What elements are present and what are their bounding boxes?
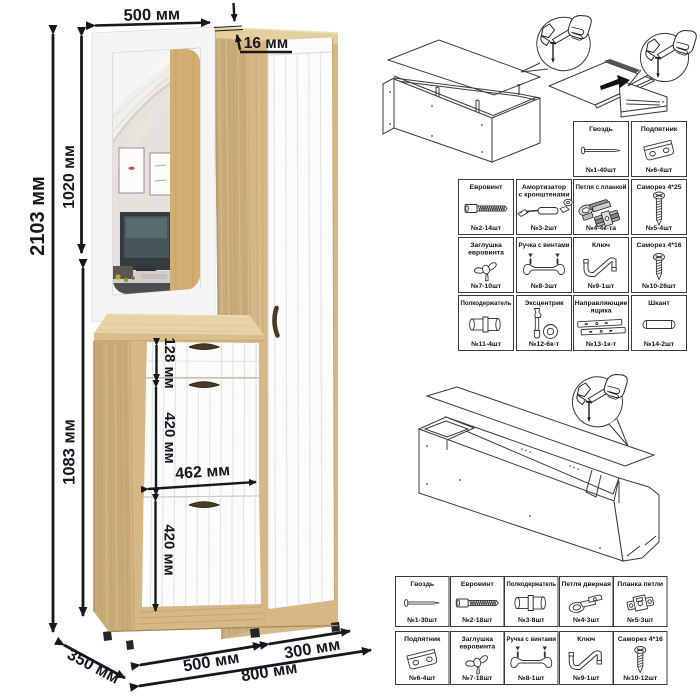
svg-text:Ключ: Ключ (577, 636, 595, 643)
svg-text:№14-2шт: №14-2шт (644, 341, 675, 348)
svg-text:евровинта: евровинта (468, 250, 504, 257)
svg-text:№2-18шт: №2-18шт (462, 617, 493, 624)
svg-text:№4-3шт: №4-3шт (573, 617, 600, 624)
svg-text:№6-4шт: №6-4шт (646, 167, 673, 174)
svg-text:16 мм: 16 мм (244, 35, 288, 52)
svg-text:Саморез 4*25: Саморез 4*25 (636, 184, 681, 191)
svg-text:№1-30шт: №1-30шт (407, 617, 438, 624)
svg-text:№10-26шт: №10-26шт (642, 283, 677, 290)
svg-text:№9-1шт: №9-1шт (573, 675, 600, 682)
svg-text:№6-4шт: №6-4шт (409, 675, 436, 682)
svg-text:1020 мм: 1020 мм (61, 145, 78, 209)
svg-text:№9-1шт: №9-1шт (588, 283, 615, 290)
svg-text:420 мм: 420 мм (161, 524, 178, 575)
svg-text:Ручка с винтами: Ручка с винтами (519, 242, 570, 249)
svg-text:№1-40шт: №1-40шт (586, 167, 617, 174)
svg-text:420 мм: 420 мм (161, 412, 178, 463)
svg-text:№3-8шт: №3-8шт (518, 617, 545, 624)
svg-text:Подпятник: Подпятник (641, 126, 678, 133)
svg-text:2103 мм: 2103 мм (27, 176, 49, 256)
svg-text:Петля дверная: Петля дверная (562, 581, 612, 588)
svg-text:Подпятник: Подпятник (404, 636, 441, 643)
svg-text:Полкодержатель: Полкодержатель (461, 300, 512, 307)
svg-text:ящика: ящика (590, 308, 611, 315)
svg-text:Эксцентрик: Эксцентрик (524, 300, 564, 307)
svg-text:Петля с планкой: Петля с планкой (576, 183, 627, 191)
svg-text:№3-2шт: №3-2шт (531, 225, 558, 232)
svg-text:Амортизатор: Амортизатор (522, 184, 566, 191)
svg-text:№5-4шт: №5-4шт (646, 225, 673, 232)
svg-text:№8-1шт: №8-1шт (518, 675, 545, 682)
svg-text:№5-3шт: №5-3шт (627, 617, 654, 624)
svg-text:№11-4шт: №11-4шт (471, 341, 501, 348)
svg-text:Заглушка: Заглушка (461, 636, 493, 643)
svg-text:Полкодержатель: Полкодержатель (507, 581, 557, 588)
svg-text:Ключ: Ключ (592, 242, 610, 249)
svg-text:350 мм: 350 мм (64, 645, 122, 687)
svg-text:1083 мм: 1083 мм (61, 419, 79, 485)
svg-text:евровинта: евровинта (459, 644, 495, 651)
svg-text:Ручка с винтами: Ручка с винтами (507, 636, 557, 643)
svg-text:№13-1к-т: №13-1к-т (586, 341, 617, 348)
svg-text:Шкант: Шкант (648, 300, 670, 307)
svg-text:Саморез 4*16: Саморез 4*16 (636, 242, 681, 249)
svg-text:№7-18шт: №7-18шт (462, 675, 493, 682)
svg-text:Евровинт: Евровинт (470, 184, 503, 191)
svg-text:№4-4к-та: №4-4к-та (586, 225, 616, 232)
svg-text:Заглушка: Заглушка (470, 242, 502, 249)
svg-text:Саморез 4*16: Саморез 4*16 (618, 636, 663, 643)
svg-text:№12-6к-т: №12-6к-т (529, 341, 560, 348)
svg-text:Евровинт: Евровинт (461, 581, 494, 588)
svg-text:№10-12шт: №10-12шт (623, 675, 658, 682)
svg-text:500 мм: 500 мм (123, 5, 180, 24)
svg-text:№8-3шт: №8-3шт (531, 283, 558, 290)
svg-text:№7-10шт: №7-10шт (471, 283, 502, 290)
svg-text:Планка петли: Планка петли (617, 581, 663, 588)
svg-text:с кронштенами: с кронштенами (519, 192, 570, 199)
svg-text:128 мм: 128 мм (161, 337, 178, 388)
svg-text:800 мм: 800 мм (240, 659, 299, 686)
svg-text:Направляющие: Направляющие (575, 300, 628, 307)
svg-text:№2-14шт: №2-14шт (471, 225, 502, 232)
svg-text:Гвоздь: Гвоздь (410, 581, 434, 588)
svg-text:Гвоздь: Гвоздь (589, 126, 613, 133)
